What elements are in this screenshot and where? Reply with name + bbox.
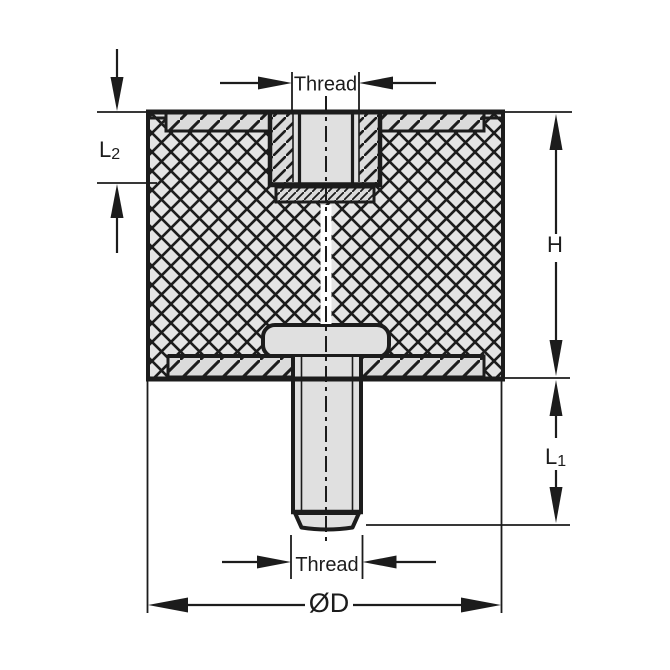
label-diameter: ØD [309, 588, 350, 618]
label-thread-bottom: Thread [295, 554, 358, 576]
rubber-mount-cross-section: Thread L2 H L1 Thread [0, 0, 670, 670]
label-thread-top: Thread [294, 74, 357, 96]
stud-shaft [291, 356, 363, 530]
label-h: H [547, 232, 563, 257]
bottom-plate-left [168, 356, 293, 377]
bottom-plate-right [361, 356, 484, 377]
technical-drawing-canvas: Thread L2 H L1 Thread [0, 0, 670, 670]
